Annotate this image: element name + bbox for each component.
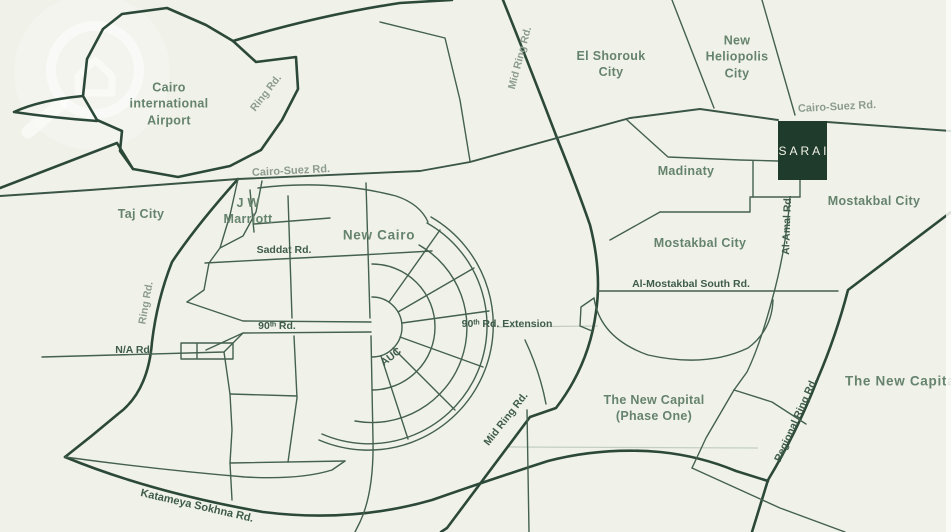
image-edge-strip	[946, 0, 951, 532]
road-cairo-suez-east	[827, 122, 951, 131]
road-ring-northeast	[233, 0, 452, 41]
road-ring-west	[65, 179, 238, 457]
road-mid-ring	[441, 0, 598, 532]
road-phase-one-boundary	[508, 447, 758, 448]
road-southwest-diagonal	[0, 143, 133, 188]
location-map: SARAI Cairo international Airport Ring R…	[0, 0, 951, 532]
project-marker-sarai: SARAI	[778, 121, 827, 180]
magnifier-house-watermark-icon	[14, 0, 170, 150]
road-network	[0, 0, 951, 532]
road-katameya-sokhna	[65, 451, 768, 516]
